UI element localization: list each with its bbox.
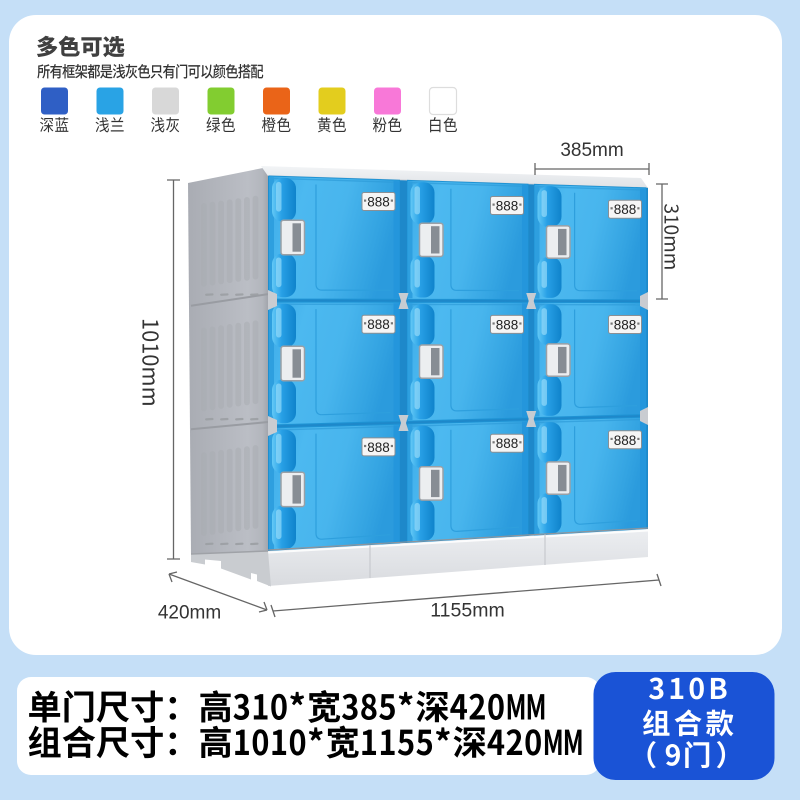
svg-text:385mm: 385mm [560,140,623,161]
svg-text:888: 888 [367,440,390,455]
svg-text:888: 888 [367,195,390,210]
svg-text:888: 888 [614,433,637,448]
svg-text:888: 888 [496,436,519,451]
svg-text:420mm: 420mm [158,603,221,624]
svg-text:888: 888 [496,199,519,214]
svg-text:888: 888 [614,318,637,333]
svg-text:888: 888 [367,317,390,332]
svg-text:888: 888 [496,317,519,332]
svg-text:1155mm: 1155mm [430,600,504,622]
svg-text:888: 888 [614,202,637,217]
